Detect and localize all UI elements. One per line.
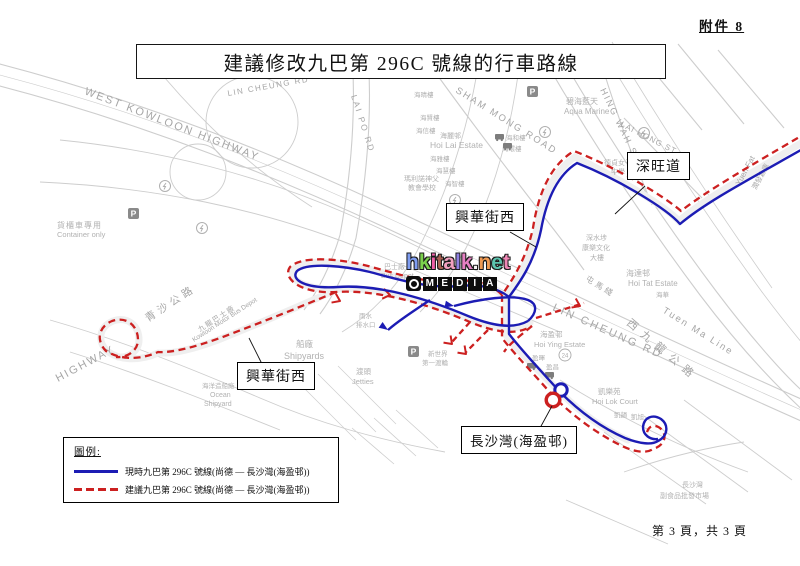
legend-sample-dashed-line [74,488,118,491]
label-hoi-ying-en: Hoi Ying Estate [534,340,585,349]
label-nwff2: 第一渡輪 [422,358,449,367]
legend-row-current: 現時九巴第 296C 號線(尚德 — 長沙灣(海盈邨)) [74,465,330,478]
label-ssp2: 康樂文化 [582,243,610,252]
label-hoi-chi: 海智樓 [445,179,465,188]
watermark-media-badge: MEDIA [406,276,510,291]
legend-sample-solid-line [74,470,118,473]
parking-icon: P [408,346,419,357]
label-shipyards-en: Shipyards [284,351,325,361]
camera-lens-icon [406,276,421,291]
label-hoi-yin: 海賢樓 [420,113,440,122]
label-west-kowloon-highway: WEST KOWLOON HIGHWAY [83,86,261,164]
road-labels: WEST KOWLOON HIGHWAY HIGHWAY 青沙公路 九龍巴士廠 … [54,75,771,385]
label-hoi-tat-zh: 海達邨 [626,268,650,278]
label-maryknoll2: 教會學校 [408,183,436,192]
legend-row-proposed: 建議九巴第 296C 號線(尚德 — 長沙灣(海盈邨)) [74,483,330,496]
legend-label-proposed: 建議九巴第 296C 號線(尚德 — 長沙灣(海盈邨)) [125,483,310,496]
label-ssp1: 深水埗 [586,233,607,242]
label-csw-market1: 長沙灣 [682,480,703,489]
label-ocean-en1: Ocean [210,392,231,399]
label-hoi-block2: 凱旭 [631,412,645,421]
label-jetties-upper-en: Jetties [352,377,374,386]
label-ocean-zh: 海洋造船廠 [202,381,235,390]
label-bus-depot-zh: 巴士廠 [384,262,405,271]
label-jetties-upper-zh: 渡頭 [356,366,371,376]
callout-sham-mong-road: 深旺道 [627,152,690,180]
label-container-zh: 貨櫃車專用 [57,220,102,230]
callout-hing-wah-st-west-lower: 興華街西 [237,362,315,390]
exit-badge-icon: 24 [559,349,571,361]
watermark-site: hkitalk.net [406,252,510,274]
callout-terminus: 長沙灣(海盈邨) [461,426,577,454]
label-ying-cheong: 盈昌 [546,363,559,371]
label-storm2: 排水口 [356,320,376,329]
label-tsing-sha-highway: 青沙公路 [143,282,199,324]
label-aqua-marine-en: Aqua Marine [564,107,610,116]
callout-hing-wah-st-west-upper: 興華街西 [446,203,524,231]
label-maryknoll1: 瑪利諾神父 [404,174,439,183]
title-box: 建議修改九巴第 296C 號線的行車路線 [136,44,666,79]
page-number: 第 3 頁，共 3 頁 [652,522,747,539]
label-ssp3: 大樓 [590,253,604,262]
label-hoi-block1: 凱韻 [614,410,628,419]
label-hoi-ching: 海晴樓 [414,90,434,99]
label-hoi-wo: 海和樓 [506,133,526,142]
legend-label-current: 現時九巴第 296C 號線(尚德 — 長沙灣(海盈邨)) [125,465,310,478]
watermark: hkitalk.net MEDIA [406,252,510,291]
legend-heading: 圖例: [74,447,101,458]
label-hoi-shun: 海信樓 [416,126,436,135]
svg-text:P: P [131,209,137,219]
legend-box: 圖例: 現時九巴第 296C 號線(尚德 — 長沙灣(海盈邨)) 建議九巴第 2… [63,437,339,503]
watermark-media-letters: MEDIA [423,277,497,291]
page-title: 建議修改九巴第 296C 號線的行車路線 [223,47,578,76]
attachment-label: 附件 8 [699,15,744,35]
label-nwff1: 新世界 [428,349,448,358]
label-container-en: Container only [57,230,106,239]
svg-text:P: P [530,87,536,97]
label-ying-fai: 盈暉 [532,354,546,362]
label-hoi-lai-zh: 海麗邨 [440,131,461,140]
label-tuen-ma-line-zh: 屯馬綫 [584,273,617,299]
svg-text:P: P [411,347,417,357]
label-shipyards-zh: 船廠 [296,339,314,349]
label-hoi-wai: 海慧樓 [436,166,456,175]
label-storm1: 雨水 [359,311,373,320]
label-ocean-en2: Shipyard [204,401,232,408]
label-hoi-tat-en: Hoi Tat Estate [628,279,678,288]
label-hoi-wah: 海華 [656,290,670,299]
label-hoi-lok-en: Hoi Lok Court [592,397,639,406]
label-csw-market2: 副食品批發市場 [660,491,709,500]
parking-icon: P [128,208,139,219]
svg-text:24: 24 [562,353,569,359]
label-hoi-lai-en: Hoi Lai Estate [430,140,483,150]
document-page: WEST KOWLOON HIGHWAY HIGHWAY 青沙公路 九龍巴士廠 … [0,0,800,566]
label-aqua-marine-zh: 碧海藍天 [566,96,598,106]
terminus-marker-proposed [546,393,560,407]
label-hoi-lok-zh: 凱樂苑 [598,386,621,396]
route-current-branch [388,300,430,330]
label-hoi-nga: 海雅樓 [430,154,450,163]
label-hoi-ying-zh: 海盈邨 [540,329,563,339]
parking-icon: P [527,86,538,97]
